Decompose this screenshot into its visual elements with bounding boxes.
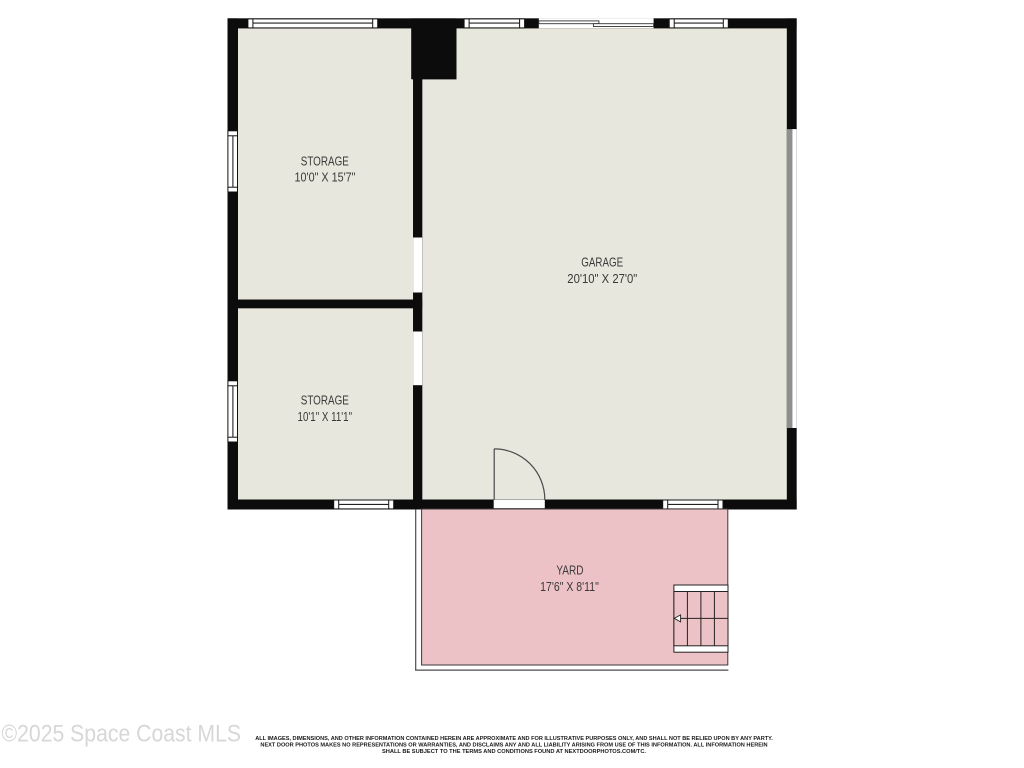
svg-text:SHALL BE SUBJECT TO THE TERMS: SHALL BE SUBJECT TO THE TERMS AND CONDIT…	[382, 749, 646, 755]
svg-text:10'1" X 11'1": 10'1" X 11'1"	[298, 409, 353, 424]
svg-text:10'0" X 15'7": 10'0" X 15'7"	[295, 170, 356, 185]
svg-text:GARAGE: GARAGE	[581, 255, 623, 270]
svg-text:YARD: YARD	[556, 563, 583, 578]
svg-text:STORAGE: STORAGE	[301, 153, 349, 168]
svg-text:20'10" X 27'0": 20'10" X 27'0"	[567, 271, 637, 286]
svg-text:©2025 Space Coast MLS: ©2025 Space Coast MLS	[2, 721, 242, 748]
svg-text:NEXT DOOR PHOTOS MAKES NO REPR: NEXT DOOR PHOTOS MAKES NO REPRESENTATION…	[260, 743, 767, 749]
svg-text:17'6" X 8'11": 17'6" X 8'11"	[540, 579, 599, 594]
svg-text:ALL IMAGES, DIMENSIONS, AND OT: ALL IMAGES, DIMENSIONS, AND OTHER INFORM…	[255, 736, 773, 742]
svg-text:STORAGE: STORAGE	[301, 393, 349, 408]
